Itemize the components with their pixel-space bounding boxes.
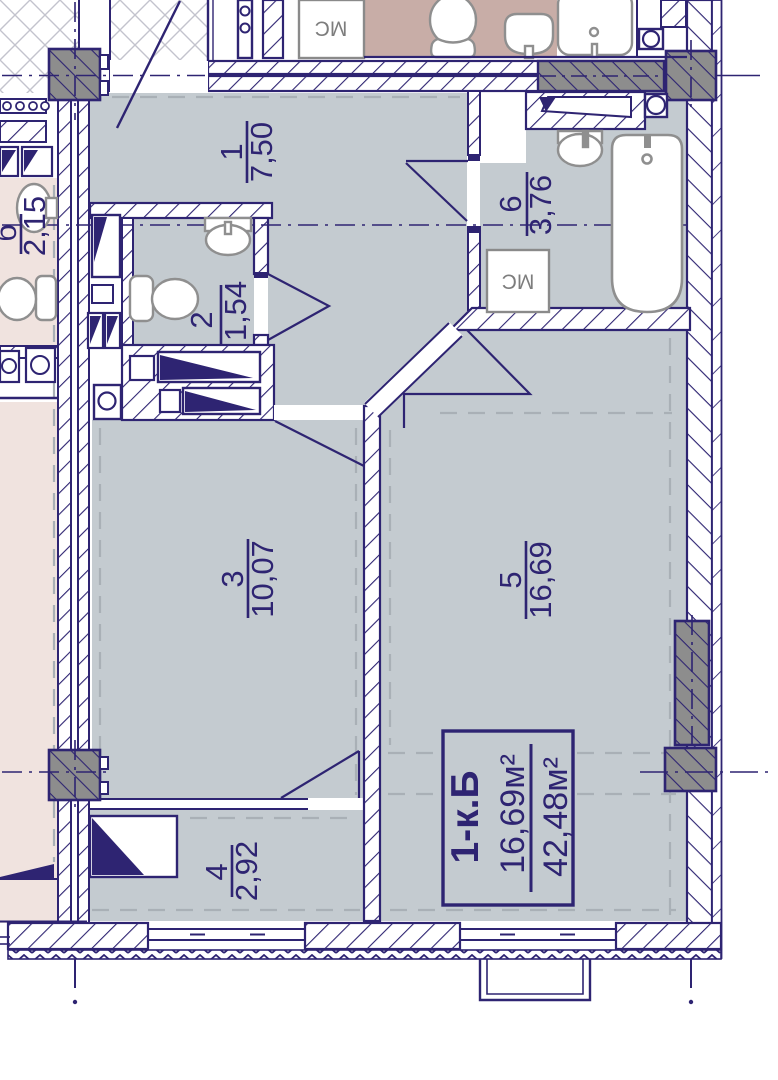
svg-text:2,92: 2,92 [229, 841, 264, 901]
svg-text:1-к.Б: 1-к.Б [444, 770, 487, 863]
svg-text:7,50: 7,50 [244, 122, 279, 182]
svg-text:1,54: 1,54 [218, 281, 253, 341]
svg-text:МС: МС [502, 270, 535, 293]
svg-text:16,69: 16,69 [523, 541, 558, 619]
svg-text:42,48м²: 42,48м² [537, 757, 575, 877]
svg-text:2,15: 2,15 [17, 196, 52, 256]
svg-text:3,76: 3,76 [523, 175, 558, 235]
svg-text:МС: МС [315, 17, 348, 40]
svg-text:10,07: 10,07 [245, 540, 280, 618]
svg-text:2: 2 [184, 311, 219, 328]
svg-text:16,69м²: 16,69м² [494, 754, 532, 874]
